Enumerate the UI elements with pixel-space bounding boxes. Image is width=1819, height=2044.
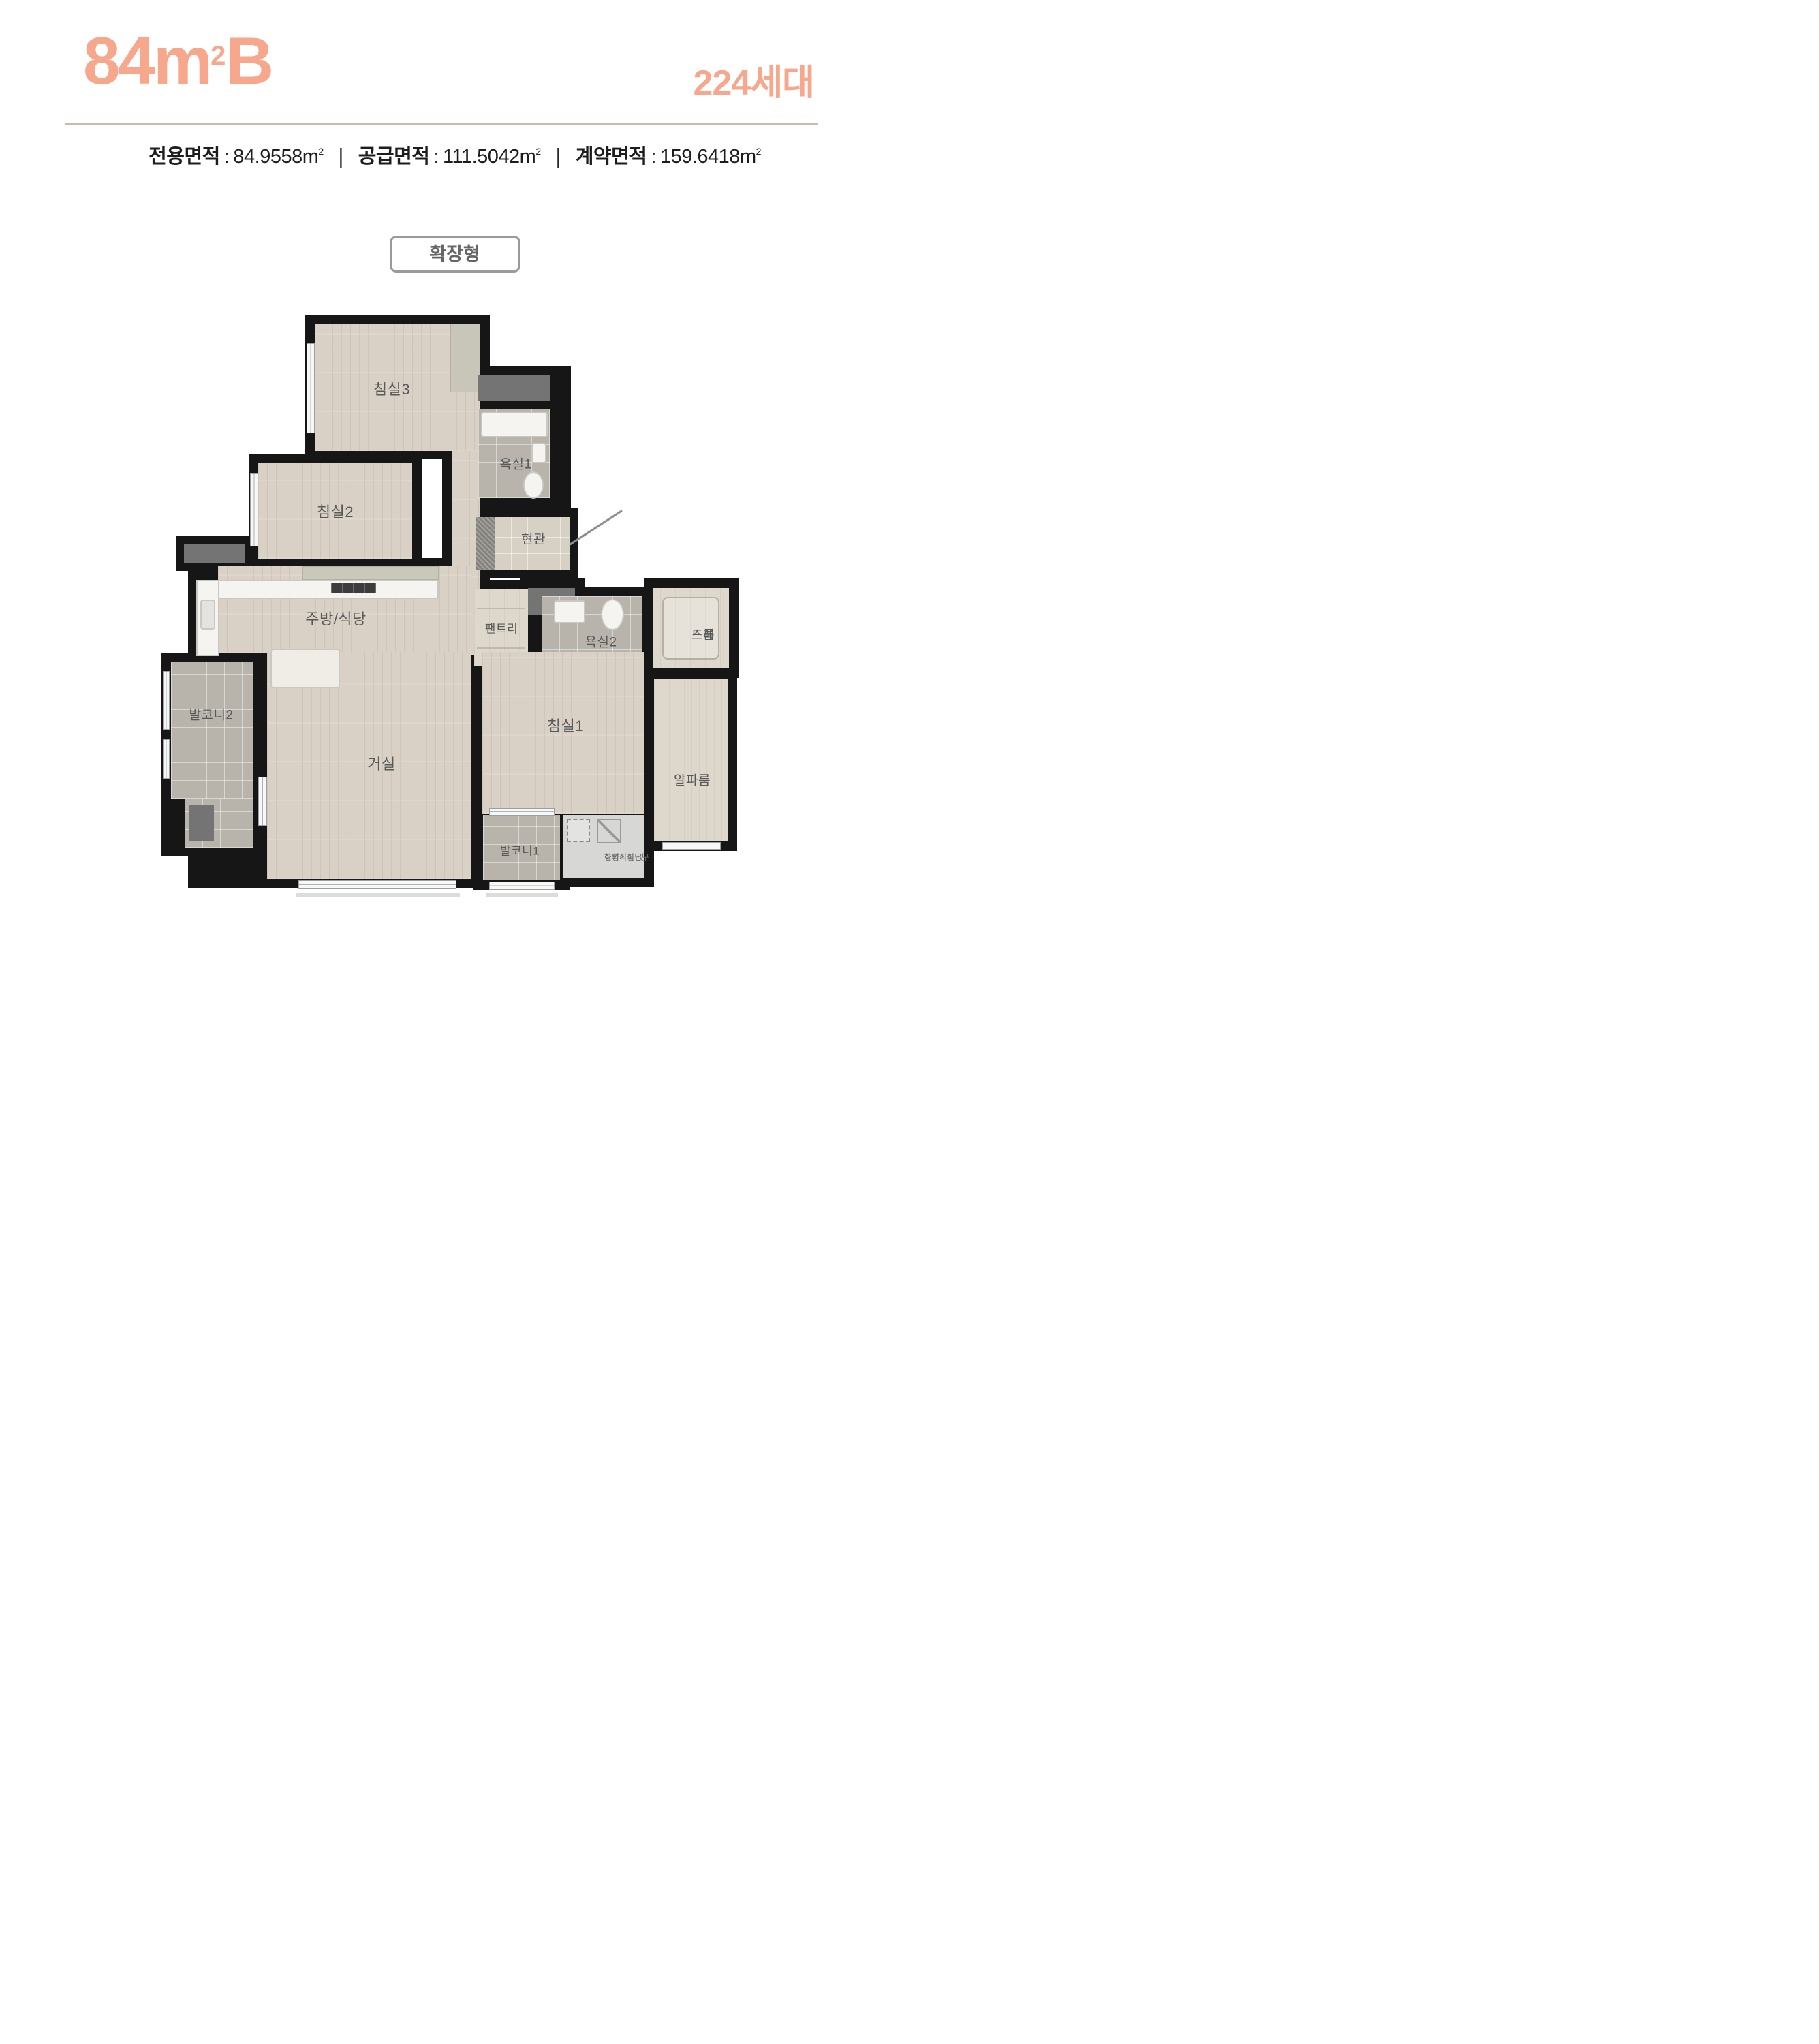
area-unit-sup: 2	[535, 146, 540, 157]
window	[489, 808, 555, 816]
outdoor-unit-icon	[597, 819, 621, 843]
title-unit: m	[153, 23, 211, 98]
flyer-page: 84m2B 224세대 전용면적:84.9558m2|공급면적:111.5042…	[0, 0, 909, 1022]
window	[307, 343, 315, 433]
area-unit: m	[740, 146, 756, 168]
household-label: 세대	[750, 63, 814, 103]
header-divider	[65, 123, 818, 125]
room-alpha	[654, 679, 728, 841]
household-number: 224	[694, 63, 751, 103]
toilet-icon	[601, 599, 624, 630]
sink-icon	[531, 443, 546, 463]
kitchen-sink-icon	[200, 600, 215, 630]
duct-shaft	[478, 375, 550, 401]
floor-plan: 침실3 욕실1 현관 침실2 주방/식당 팬트리 욕실2 드레 스룸 발코니2 …	[157, 308, 756, 908]
room-label-pantry: 팬트리	[485, 619, 518, 636]
area-unit-sup: 2	[318, 146, 323, 157]
window	[489, 882, 555, 890]
title-type: B	[226, 23, 272, 98]
area-value: 159.6418	[660, 146, 740, 168]
room-label-bedroom2: 침실2	[317, 500, 354, 522]
room-label-kitchen: 주방/식당	[305, 607, 367, 629]
outdoor-line2: 하향식피난구	[604, 853, 649, 863]
kitchen-counter	[218, 580, 439, 599]
area-value: 84.9558	[233, 146, 302, 168]
colon: :	[651, 146, 656, 168]
window	[163, 739, 170, 779]
room-balcony2	[171, 662, 253, 799]
room-label-balcony1: 발코니1	[500, 841, 540, 858]
separator: |	[339, 144, 343, 169]
area-label: 전용면적	[149, 146, 220, 168]
colon: :	[433, 146, 439, 168]
room-label-bath1: 욕실1	[499, 454, 531, 473]
window	[662, 842, 721, 850]
area-info-row: 전용면적:84.9558m2|공급면적:111.5042m2|계약면적:159.…	[0, 140, 909, 169]
room-label-bedroom3: 침실3	[373, 377, 410, 399]
area-unit: m	[520, 146, 536, 168]
escape-hatch-icon	[567, 819, 590, 842]
area-unit: m	[302, 146, 319, 168]
area-label: 공급면적	[358, 146, 430, 168]
kitchen-island	[270, 649, 340, 688]
title-area: 84	[83, 23, 153, 98]
area-label: 계약면적	[576, 146, 647, 168]
kitchen-cabinet	[302, 566, 439, 580]
room-label-living: 거실	[367, 752, 395, 774]
room-label-alpha: 알파룸	[674, 771, 711, 789]
window	[250, 473, 258, 546]
room-label-bedroom1: 침실1	[547, 714, 584, 736]
window-sill	[486, 893, 558, 897]
area-unit-sup: 2	[756, 146, 761, 157]
entrance-mat	[476, 517, 495, 570]
closet-bedroom3	[450, 324, 480, 392]
room-label-bath2: 욕실2	[585, 632, 617, 651]
window	[298, 880, 456, 889]
type-badge: 확장형	[390, 236, 520, 273]
room-label-balcony2: 발코니2	[189, 705, 233, 724]
toilet-icon	[523, 471, 544, 499]
bathtub-icon	[481, 412, 548, 437]
duct-shaft	[184, 544, 245, 563]
window-sill	[296, 893, 460, 897]
title-sup: 2	[211, 41, 226, 71]
area-value: 111.5042	[443, 146, 520, 168]
ac-unit-icon	[189, 805, 214, 841]
page-title: 84m2B	[83, 27, 272, 94]
cooktop-icon	[331, 583, 376, 593]
sink-icon	[554, 600, 585, 623]
pantry-shelf	[477, 647, 525, 649]
colon: :	[224, 146, 230, 168]
room-label-entrance: 현관	[521, 529, 546, 548]
pantry-shelf	[477, 608, 525, 609]
household-count: 224세대	[694, 65, 814, 101]
dressroom-line2: 스룸	[691, 628, 715, 643]
window	[163, 671, 170, 730]
separator: |	[556, 144, 561, 169]
window	[258, 777, 267, 826]
